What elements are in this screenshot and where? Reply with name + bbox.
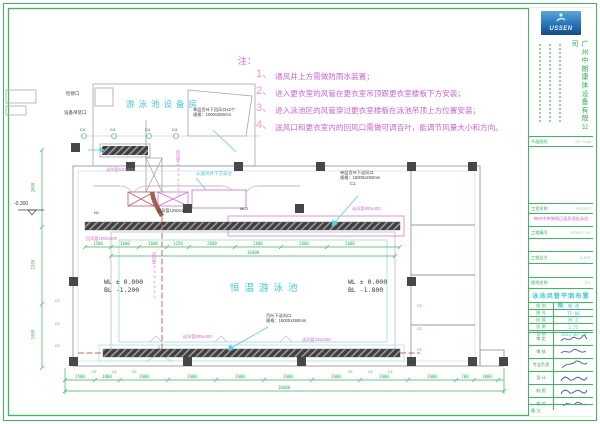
info-value: 1:75 xyxy=(554,325,593,330)
note-text: 通风井上方需做防雨水装置； xyxy=(275,69,374,82)
dim-value: 1500 xyxy=(30,260,35,270)
return-duct-riser-label: 回风管630x320 xyxy=(176,150,181,198)
exterior-fittings xyxy=(6,90,36,115)
dim-value: 1000 xyxy=(102,374,112,379)
company-name: 广州中朗康体设备有限公司 xyxy=(568,40,588,132)
tag-c2: C2 xyxy=(92,370,96,374)
note-text: 进入泳池区的风管穿过更衣室楼板在泳池吊顶上方位置安装； xyxy=(275,103,480,116)
signature-scribble xyxy=(559,373,589,383)
drawing-title: 泳池风管平面布置图 xyxy=(529,288,593,302)
project-no-header: 工程编号 PROJECT NO. xyxy=(529,226,593,238)
sign-label: 审 核 xyxy=(529,346,554,358)
tag-mc1: MC1 xyxy=(240,206,248,211)
return-grille-label: 单层百叶下回风口x2个 规格：1000x250mm xyxy=(193,107,235,118)
dim-value: 2600 xyxy=(187,374,197,379)
project-name: 梅州中央城假日温泉酒店泳池 xyxy=(529,213,593,226)
note-number: 2、 xyxy=(256,86,273,97)
tag-n1: N1 xyxy=(94,210,99,215)
note-item: 3、 进入泳池区的风管穿过更衣室楼板在泳池吊顶上方位置安装； xyxy=(256,103,530,116)
tag-c3: C3 xyxy=(55,322,59,326)
dim-value: 2600 xyxy=(331,374,341,379)
sign-label: 制 图 xyxy=(529,385,554,397)
tag-c1: C1 xyxy=(340,181,380,186)
general-notes: 注： 1、 通风井上方需做防雨水装置； 2、 进入更衣室的风管在更衣室吊顶跟更衣… xyxy=(238,54,530,137)
signature xyxy=(554,334,593,344)
signature xyxy=(554,386,593,396)
sign-label: 专业负责 xyxy=(529,359,554,371)
equipment-room-label: 游泳池设备房 xyxy=(126,99,201,110)
note-text: 送风口和更衣室内的回风口需做可调百叶，能调节风量大小和方向。 xyxy=(275,120,503,133)
supply-duct-top xyxy=(85,222,400,230)
dim-value: 1500 xyxy=(75,374,85,379)
company-logo: USSEN xyxy=(541,11,581,35)
sign-label: 设 计 xyxy=(529,372,554,384)
info-value: TF-08 xyxy=(554,311,593,316)
dim-value: 2600 xyxy=(283,374,293,379)
supply-duct-610-label: 送风管610x210 xyxy=(106,167,135,172)
dim-value: 1500 xyxy=(93,241,103,246)
remark-row: 备 注 xyxy=(529,404,593,416)
info-value: 施 工 xyxy=(554,317,593,323)
signature-scribble xyxy=(559,386,589,396)
entry-level-label: -0.300 xyxy=(14,201,28,207)
company-info-microtext xyxy=(559,44,561,124)
note-item: 1、 通风井上方需做防雨水装置； xyxy=(256,69,530,82)
tag-c3: C3 xyxy=(55,344,59,348)
title-block: USSEN 广州中朗康体设备有限公司 平面图形 KEY PLAN 工程名称 PR… xyxy=(528,8,593,416)
supply-duct-1250-label: 送风管1250x400 xyxy=(157,208,188,213)
hoist-port-label: 设备吊装口 xyxy=(64,110,87,116)
tag-c2: C2 xyxy=(368,370,372,374)
note-text: 进入更衣室的风管在更衣室吊顶跟更衣室楼板下方安装； xyxy=(275,86,465,99)
tag-c4: C4 xyxy=(80,127,85,132)
info-label: 图 别 xyxy=(529,303,554,309)
signature-table: 审 定 审 核 专业负责 设 计 制 图 校 对 xyxy=(529,332,593,404)
signature-scribble xyxy=(559,360,589,370)
dim-value: 1600 xyxy=(148,241,158,246)
supply-outlet-top-label: 单层百叶下送风口 规格：15000x260mm C1 xyxy=(340,170,380,186)
tag-c4: C4 xyxy=(145,127,150,132)
tag-c4: C4 xyxy=(172,127,177,132)
level-mark xyxy=(18,210,44,215)
signature-scribble xyxy=(559,334,589,344)
signature xyxy=(554,373,593,383)
tag-c4: C4 xyxy=(110,127,115,132)
columns xyxy=(69,143,508,366)
tag-c3: C3 xyxy=(417,304,421,308)
note-item: 4、 送风口和更衣室内的回风口需做可调百叶，能调节风量大小和方向。 xyxy=(256,120,530,133)
company-block: 广州中朗康体设备有限公司 xyxy=(529,36,593,136)
tag-c3: C3 xyxy=(417,348,421,352)
company-info-microtext xyxy=(539,44,541,124)
tag-c2: C2 xyxy=(132,370,136,374)
dim-value: 2600 xyxy=(299,241,309,246)
dim-value: 1000 xyxy=(482,374,492,379)
project-no-box xyxy=(529,238,593,251)
drawing-sheet: 注： 1、 通风井上方需做防雨水装置； 2、 进入更衣室的风管在更衣室吊顶跟更衣… xyxy=(0,0,600,424)
project-header: 工程名称 PROJECT xyxy=(529,203,593,213)
dim-value: 1250 xyxy=(173,241,183,246)
swimmer-icon xyxy=(555,12,567,24)
signature xyxy=(554,360,593,370)
keyplan-header: 平面图形 KEY PLAN xyxy=(529,136,593,146)
dim-value: 2600 xyxy=(379,374,389,379)
dim-value: 2600 xyxy=(427,374,437,379)
dim-value: 2600 xyxy=(30,183,35,193)
supply-duct-bottom xyxy=(103,349,400,357)
tag-c2: C2 xyxy=(112,370,116,374)
company-info-microtext xyxy=(549,44,551,124)
signature xyxy=(554,347,593,357)
supply-duct-800-top-label: 送风管800x400 xyxy=(352,206,381,211)
signature-scribble xyxy=(559,347,589,357)
dim-value: 700 xyxy=(461,374,468,379)
drawing-title-header: 图纸名称 TITL xyxy=(529,277,593,288)
note-number: 1、 xyxy=(256,69,273,80)
dim-value: 1600 xyxy=(120,241,130,246)
dim-value: 2600 xyxy=(345,241,355,246)
dim-pool-total: 18400 xyxy=(247,250,259,255)
dim-bottom-total: 18400 xyxy=(278,385,290,390)
inspection-port-label: 检修口 xyxy=(66,91,80,97)
note-item: 2、 进入更衣室的风管在更衣室吊顶跟更衣室楼板下方安装； xyxy=(256,86,530,99)
tag-c2: C2 xyxy=(348,370,352,374)
client-header: 工程业主 CLIENT xyxy=(529,251,593,263)
supply-outlet-bottom-label: 百叶下送风口 规格：15000x260mm xyxy=(266,313,306,324)
info-label: 比 例 xyxy=(529,324,554,330)
info-label: 阶 段 xyxy=(529,317,554,323)
dim-value: 2600 xyxy=(235,374,245,379)
dim-value: 2600 xyxy=(253,241,263,246)
info-label: 图 号 xyxy=(529,310,554,316)
info-value: 暖 通 xyxy=(554,303,593,309)
supply-duct-800-bottom-label: 送风管800x400 xyxy=(183,334,212,339)
client-box xyxy=(529,263,593,277)
pass-under-shaft-note: 从送风井下方穿过 xyxy=(196,171,232,177)
level-left-label: WL ± 0.000 BL -1.200 xyxy=(104,278,143,294)
info-table: 图 别暖 通 图 号TF-08 阶 段施 工 比 例1:75 日 期2012-0… xyxy=(529,302,593,332)
dim-value: 1000 xyxy=(30,330,35,340)
supply-duct-315-label: 送风管315x250 xyxy=(302,337,331,342)
logo-text: USSEN xyxy=(549,26,572,32)
dim-value: 2600 xyxy=(207,241,217,246)
note-number: 3、 xyxy=(256,103,273,114)
pool-name-label: 恒温游泳池 xyxy=(230,283,303,295)
keyplan-box xyxy=(529,146,593,203)
note-number: 4、 xyxy=(256,120,273,131)
sign-label: 审 定 xyxy=(529,333,554,345)
notes-heading: 注： xyxy=(238,54,530,67)
level-right-label: WL ± 0.000 BL -1.800 xyxy=(348,278,387,294)
tag-c3: C3 xyxy=(55,299,59,303)
silencer-unit xyxy=(102,146,148,155)
supply-duct-riser-label: 送风管630x320 xyxy=(152,252,157,302)
tag-c3: C3 xyxy=(417,327,421,331)
dim-value: 2600 xyxy=(139,374,149,379)
